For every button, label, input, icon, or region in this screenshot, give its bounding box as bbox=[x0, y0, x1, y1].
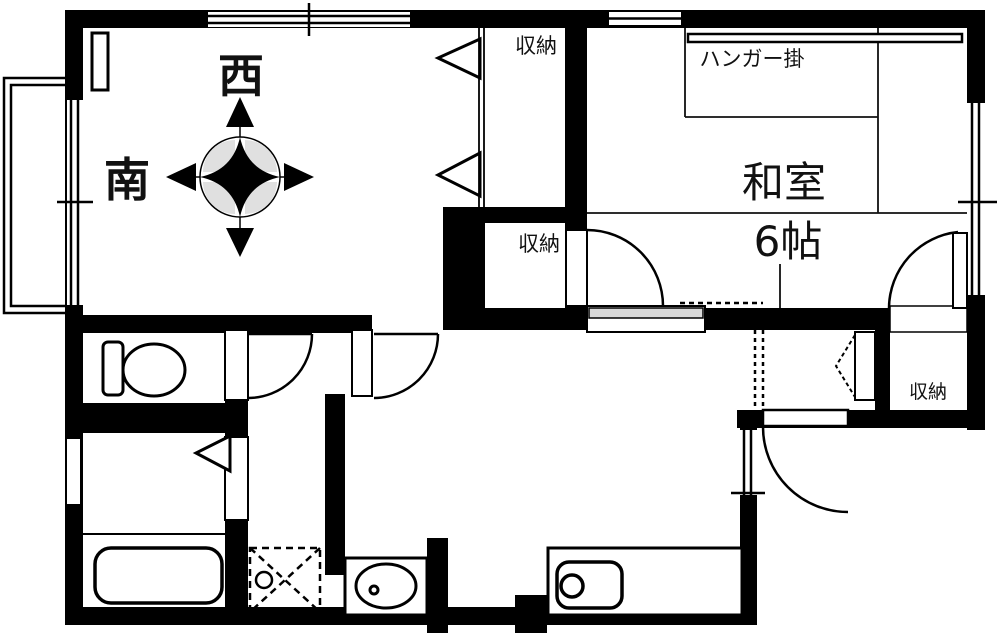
wall-washitsu-bottom-mid bbox=[705, 308, 890, 330]
wall-v2-corridor bbox=[325, 394, 345, 575]
label-washitsu-area: 6帖 bbox=[754, 217, 823, 266]
label-washitsu-name: 和室 bbox=[742, 158, 826, 207]
label-hanger-rack: ハンガー掛 bbox=[700, 47, 805, 71]
doorway-toilet bbox=[225, 330, 248, 400]
label-closet-entrance: 収納 bbox=[909, 381, 947, 403]
hanger-rack-bar bbox=[688, 34, 962, 42]
door-leaf-washitsu-south bbox=[953, 233, 967, 308]
washbasin-icon bbox=[345, 558, 427, 615]
front-door-leaf bbox=[763, 410, 848, 426]
door-leaf-washitsu-west bbox=[566, 230, 587, 306]
label-south: 南 bbox=[104, 153, 150, 207]
wall-living-bottom bbox=[65, 315, 372, 333]
label-west: 西 bbox=[218, 49, 264, 103]
kitchen-sink-icon bbox=[548, 548, 742, 615]
wall-closet3-left bbox=[875, 330, 890, 412]
wall-toilet-bath bbox=[83, 403, 230, 433]
wall-stub-kitchen bbox=[515, 595, 547, 633]
genkan-closet-leaf bbox=[855, 332, 875, 400]
floor-plan: 西 南 収納 収納 収納 ハンガー掛 和室 6帖 bbox=[0, 0, 1000, 633]
label-closet-top: 収納 bbox=[515, 34, 557, 58]
wall-stub-basin bbox=[427, 538, 448, 633]
doorway-corridor bbox=[352, 330, 372, 396]
opening-washitsu-south bbox=[890, 306, 967, 332]
toilet-icon bbox=[103, 342, 185, 396]
wall-washitsu-bottom-left bbox=[443, 308, 587, 330]
pillar-box bbox=[92, 33, 108, 90]
bathtub-icon bbox=[95, 548, 222, 603]
window-top-small bbox=[608, 11, 682, 26]
wall-top bbox=[65, 10, 985, 28]
window-bathroom bbox=[66, 438, 81, 505]
sliding-door bbox=[587, 306, 705, 332]
label-closet-mid: 収納 bbox=[518, 232, 560, 256]
